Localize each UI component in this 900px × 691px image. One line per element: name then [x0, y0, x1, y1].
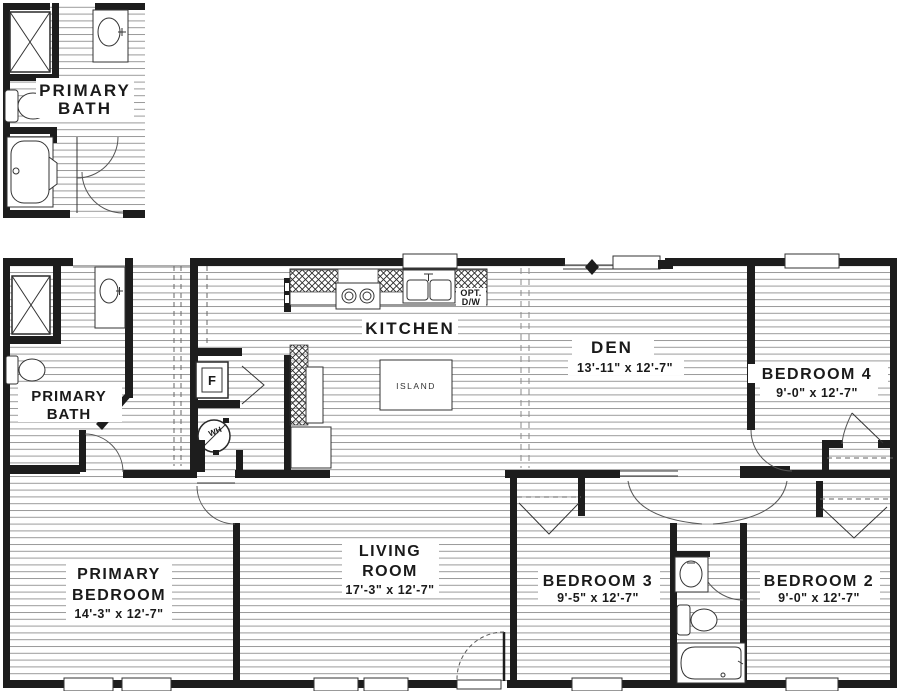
main-plan: PRIMARY BATH F WH	[3, 254, 897, 691]
inset-primary-bath-detail: PRIMARY BATH	[3, 3, 145, 218]
room-label: BEDROOM 2	[764, 573, 874, 590]
bathtub-icon	[7, 137, 57, 207]
bathtub-icon	[677, 643, 745, 683]
room-label: BEDROOM 3	[543, 573, 653, 590]
room-dims: 17'-3" x 12'-7"	[345, 583, 434, 597]
living-room-window-1	[314, 678, 358, 691]
bedroom4-window	[785, 254, 839, 268]
room-label-line2: BEDROOM	[72, 587, 166, 604]
room-label-line1: PRIMARY	[77, 566, 161, 583]
inset-room-label-line1: PRIMARY	[39, 81, 131, 100]
bedroom2-window	[786, 678, 838, 691]
room-dims: 14'-3" x 12'-7"	[74, 607, 163, 621]
room-dims: 9'-0" x 12'-7"	[776, 386, 858, 400]
furnace-box: F	[196, 362, 228, 398]
bathroom-sink-icon	[672, 551, 710, 592]
kitchen-window	[403, 254, 457, 268]
room-label-line1: PRIMARY	[31, 388, 107, 405]
shower-icon	[12, 276, 50, 334]
furnace-label: F	[208, 373, 216, 388]
floor-plan-page: PRIMARY BATH	[0, 0, 900, 691]
room-label: BEDROOM 4	[762, 366, 872, 383]
kitchen-counter: OPT. D/W	[290, 269, 487, 309]
room-dims: 9'-5" x 12'-7"	[557, 591, 639, 605]
room-label: KITCHEN	[365, 319, 455, 338]
inset-room-label-line2: BATH	[58, 99, 112, 118]
bathroom-sink-icon	[93, 10, 128, 62]
bedroom3-window	[572, 678, 622, 691]
top-wall-step	[613, 256, 660, 269]
room-dims: 13'-11" x 12'-7"	[577, 361, 673, 375]
living-room-window-2	[364, 678, 408, 691]
room-label-line2: ROOM	[362, 563, 418, 580]
island-label: ISLAND	[396, 381, 436, 391]
kitchen-island: ISLAND	[380, 360, 452, 410]
cooktop-icon	[336, 283, 380, 309]
room-label-line1: LIVING	[359, 543, 421, 560]
room-dims: 9'-0" x 12'-7"	[778, 591, 860, 605]
bathroom-sink-icon	[95, 267, 125, 328]
opt-dw-label-line2: D/W	[462, 297, 481, 307]
primary-bedroom-window-1	[64, 678, 113, 691]
floor-plan-canvas: PRIMARY BATH	[0, 0, 900, 691]
kitchen-sink-icon	[403, 270, 455, 303]
room-label-line2: BATH	[47, 406, 92, 423]
room-label: DEN	[591, 338, 633, 357]
shower-icon	[10, 12, 50, 72]
primary-bedroom-window-2	[122, 678, 171, 691]
